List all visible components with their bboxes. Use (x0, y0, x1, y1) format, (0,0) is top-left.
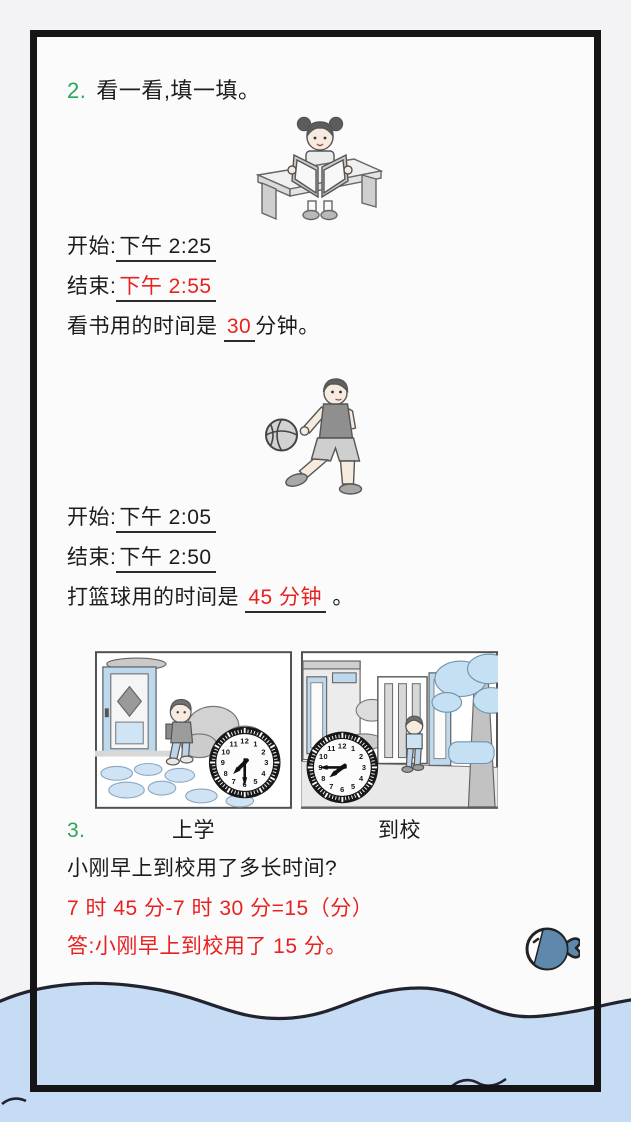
question-3-number: 3. (67, 818, 95, 844)
svg-text:4: 4 (359, 774, 364, 783)
reading-times-block: 开始:下午 2:25 结束:下午 2:55 看书用的时间是 30分钟。 (67, 235, 570, 339)
svg-text:11: 11 (230, 739, 239, 748)
question-2-header: 2.看一看,填一填。 (67, 77, 570, 105)
svg-text:5: 5 (351, 782, 356, 791)
svg-text:7: 7 (232, 777, 237, 786)
clock-icon: 123456789101112 (209, 727, 281, 799)
svg-text:5: 5 (253, 777, 258, 786)
fish-icon (522, 922, 580, 978)
reading-start-value: 下午 2:25 (116, 235, 215, 262)
picture-label-arriving: 到校 (301, 818, 498, 844)
worksheet-canvas: 2.看一看,填一填。 (0, 0, 631, 1122)
reading-duration-line: 看书用的时间是 30分钟。 (67, 315, 570, 339)
svg-text:6: 6 (340, 785, 345, 794)
svg-text:4: 4 (261, 769, 266, 778)
picture-arriving-at-school: 123456789101112 (301, 650, 498, 810)
svg-text:10: 10 (319, 752, 328, 761)
reading-duration-value: 30 (224, 315, 255, 342)
basketball-start-line: 开始:下午 2:05 (67, 506, 570, 530)
picture-going-to-school: 123456789101112 (95, 650, 292, 810)
reading-girl-illustration (253, 111, 385, 223)
duration-suffix: 分钟。 (255, 315, 320, 338)
question-3-pictures: 123456789101112 (95, 650, 570, 810)
svg-text:10: 10 (221, 747, 230, 756)
svg-text:3: 3 (362, 763, 367, 772)
worksheet-content: 2.看一看,填一填。 (37, 37, 594, 960)
svg-text:11: 11 (327, 744, 336, 753)
basketball-boy-illustration (241, 371, 396, 496)
end-label: 结束: (67, 275, 116, 298)
svg-text:3: 3 (264, 758, 269, 767)
basketball-end-value: 下午 2:50 (116, 546, 215, 573)
clock-icon: 123456789101112 (307, 732, 379, 804)
svg-text:7: 7 (329, 782, 334, 791)
end-label: 结束: (67, 546, 116, 569)
question-3-text: 小刚早上到校用了多长时间? (67, 856, 570, 882)
duration-suffix: 。 (332, 586, 354, 609)
water-fill (0, 983, 631, 1122)
duration-prefix: 看书用的时间是 (67, 315, 218, 338)
basketball-end-line: 结束:下午 2:50 (67, 546, 570, 570)
basketball-times-block: 开始:下午 2:05 结束:下午 2:50 打篮球用的时间是 45 分钟 。 (67, 506, 570, 610)
svg-text:9: 9 (221, 758, 226, 767)
svg-text:12: 12 (338, 741, 347, 750)
start-label: 开始: (67, 235, 116, 258)
question-2-number: 2. (67, 78, 86, 103)
svg-text:2: 2 (359, 752, 364, 761)
svg-text:2: 2 (261, 747, 266, 756)
basketball-duration-line: 打篮球用的时间是 45 分钟 。 (67, 586, 570, 610)
reading-end-value: 下午 2:55 (116, 275, 215, 302)
wave-decoration (0, 972, 631, 1122)
svg-text:8: 8 (224, 769, 229, 778)
svg-text:1: 1 (253, 739, 258, 748)
equation-text: 7 时 45 分-7 时 30 分=15（分） (67, 896, 570, 922)
answer-text: 答:小刚早上到校用了 15 分。 (67, 934, 570, 960)
reading-start-line: 开始:下午 2:25 (67, 235, 570, 259)
basketball-start-value: 下午 2:05 (116, 506, 215, 533)
duration-prefix: 打篮球用的时间是 (67, 586, 239, 609)
svg-text:12: 12 (240, 736, 249, 745)
question-3-row: 3. 上学 到校 (67, 818, 570, 844)
basketball-duration-value: 45 分钟 (245, 586, 326, 613)
svg-text:8: 8 (321, 774, 326, 783)
start-label: 开始: (67, 506, 116, 529)
svg-text:1: 1 (351, 744, 356, 753)
question-2-title: 看一看,填一填。 (96, 78, 260, 103)
reading-end-line: 结束:下午 2:55 (67, 275, 570, 299)
picture-label-going: 上学 (95, 818, 292, 844)
